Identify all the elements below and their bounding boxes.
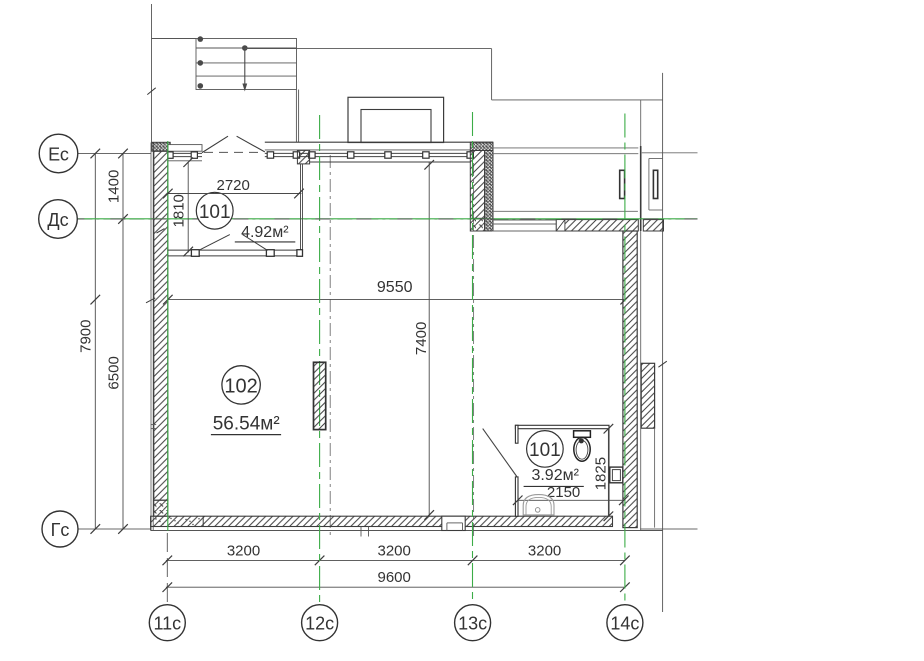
svg-text:1400: 1400 xyxy=(105,170,122,203)
svg-text:3200: 3200 xyxy=(528,542,561,559)
svg-text:9600: 9600 xyxy=(378,569,411,586)
svg-text:56.54м²: 56.54м² xyxy=(213,413,280,434)
svg-text:7900: 7900 xyxy=(77,320,94,353)
svg-text:1825: 1825 xyxy=(592,457,609,490)
svg-text:7400: 7400 xyxy=(413,322,430,355)
svg-text:2720: 2720 xyxy=(217,177,250,194)
svg-text:1810: 1810 xyxy=(171,194,188,227)
svg-text:6500: 6500 xyxy=(105,356,122,389)
svg-text:3.92м²: 3.92м² xyxy=(531,467,579,484)
svg-text:11с: 11с xyxy=(153,614,181,634)
svg-text:Гс: Гс xyxy=(51,520,70,540)
svg-text:101: 101 xyxy=(529,440,561,461)
svg-text:3200: 3200 xyxy=(378,542,411,559)
svg-text:3200: 3200 xyxy=(227,542,260,559)
svg-text:Ес: Ес xyxy=(48,145,69,165)
svg-text:Дс: Дс xyxy=(47,210,68,230)
svg-text:102: 102 xyxy=(224,376,257,398)
svg-text:12с: 12с xyxy=(305,614,334,634)
svg-text:9550: 9550 xyxy=(377,279,413,296)
svg-text:101: 101 xyxy=(199,202,231,223)
svg-text:13с: 13с xyxy=(458,614,487,634)
svg-text:4.92м²: 4.92м² xyxy=(241,224,289,241)
svg-text:14с: 14с xyxy=(610,614,639,634)
